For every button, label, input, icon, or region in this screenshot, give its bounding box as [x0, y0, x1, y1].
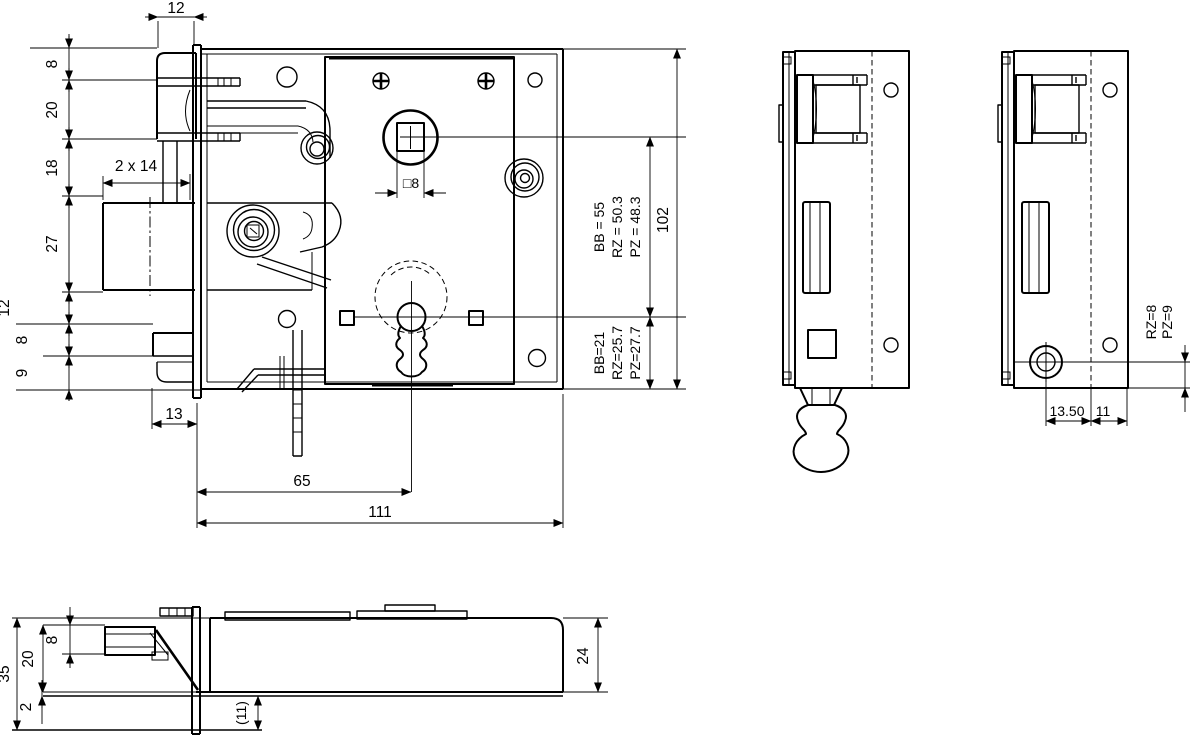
spring-upper-left	[301, 132, 333, 164]
dimensions-bottom: 13 65 111	[152, 388, 563, 528]
dim-label-bb21: BB=21	[591, 332, 607, 375]
screw-hole-top-r	[1103, 83, 1117, 97]
mounting-square-right	[469, 311, 483, 325]
latch-lever	[207, 101, 330, 158]
cover-plate	[325, 57, 514, 384]
dim-label-follower-square: □8	[403, 175, 419, 191]
keyhole	[375, 261, 447, 377]
dim-label-left-20: 20	[44, 101, 61, 119]
screw-hole-bottom	[884, 338, 898, 352]
side-view-left	[779, 51, 909, 472]
hole-mid-left	[279, 311, 296, 328]
dim-label-11: 11	[1096, 403, 1111, 419]
case-bottom-outline	[12, 618, 563, 730]
back-plate-left	[779, 52, 795, 385]
dimensions-bottom-view: 35 20 8 2 (11) 24	[0, 607, 608, 730]
dim-label-left-8b: 8	[14, 336, 31, 345]
bottom-view: 35 20 8 2 (11) 24	[0, 605, 608, 734]
dim-label-35: 35	[0, 665, 13, 682]
dim-label-left-27: 27	[44, 235, 61, 252]
auxiliary-bolt	[153, 333, 193, 382]
front-view: 12 8 20 18 27 12 8 9 2 x 14	[0, 0, 686, 528]
dim-label-rz503: RZ = 50.3	[609, 196, 625, 258]
lock-case	[201, 49, 563, 389]
dimension-follower-square: □8	[375, 152, 446, 198]
dim-label-111: 111	[368, 504, 392, 521]
bolt-stack-left	[803, 202, 830, 293]
latch-bolt-bottom	[105, 627, 198, 690]
dim-label-bb55: BB = 55	[591, 202, 607, 252]
bolt-stack-right	[1022, 202, 1049, 293]
dim-label-pz277: PZ=27.7	[627, 326, 643, 380]
dimensions-right: 102 BB = 55 RZ = 50.3 PZ = 48.3 BB=21 RZ…	[354, 49, 686, 492]
hole-bottom-right	[529, 350, 546, 367]
side-view-right: 13.50 11 RZ=8 PZ=9	[998, 51, 1190, 426]
dim-label-left-9: 9	[14, 369, 31, 378]
dim-label-left-12: 12	[0, 299, 13, 316]
hole-top-left	[277, 67, 297, 87]
dim-label-65: 65	[293, 473, 310, 490]
square-opening-left	[808, 330, 836, 358]
mounting-square-left	[340, 311, 354, 325]
technical-drawing-lock: 12 8 20 18 27 12 8 9 2 x 14	[0, 0, 1190, 737]
dimension-top: 12	[145, 0, 207, 48]
dim-label-pz9: PZ=9	[1159, 305, 1175, 339]
latch-bolt-side-right	[1016, 75, 1086, 143]
screw-right	[478, 73, 494, 89]
dimensions-side-right: 13.50 11 RZ=8 PZ=9	[1014, 304, 1190, 426]
latch-bolt	[157, 53, 240, 203]
follower-nut	[384, 111, 438, 165]
dim-label-latch-width: 12	[167, 0, 184, 17]
faceplate-bottom	[192, 607, 200, 734]
dim-label-pz483: PZ = 48.3	[627, 196, 643, 257]
hole-top-right	[528, 73, 542, 87]
dim-label-24: 24	[575, 647, 592, 665]
dimensions-left: 8 20 18 27 12 8 9	[0, 34, 201, 401]
dim-label-1350: 13.50	[1049, 403, 1084, 419]
control-rod	[280, 330, 302, 456]
dim-label-13: 13	[165, 406, 182, 423]
dim-label-b11: (11)	[233, 701, 249, 725]
dim-label-102: 102	[655, 207, 672, 233]
screw-left	[373, 73, 389, 89]
key	[794, 388, 849, 472]
deadbolt	[103, 197, 341, 296]
dim-label-rz8: RZ=8	[1143, 304, 1159, 339]
dim-label-rz257: RZ=25.7	[609, 326, 625, 380]
dim-label-left-8a: 8	[44, 60, 61, 69]
dim-label-b8: 8	[44, 636, 61, 645]
screw-hole-bottom-r	[1103, 338, 1117, 352]
dim-label-left-18: 18	[44, 159, 61, 176]
back-plate-right	[998, 52, 1014, 385]
dim-label-b2: 2	[18, 703, 35, 712]
spring-upper-right	[505, 159, 543, 197]
dim-label-bolt-throw: 2 x 14	[115, 158, 158, 175]
spring-deadbolt	[227, 205, 279, 257]
screw-hole-top	[884, 83, 898, 97]
dim-label-b20: 20	[20, 650, 37, 668]
latch-bolt-side-left	[797, 75, 867, 143]
